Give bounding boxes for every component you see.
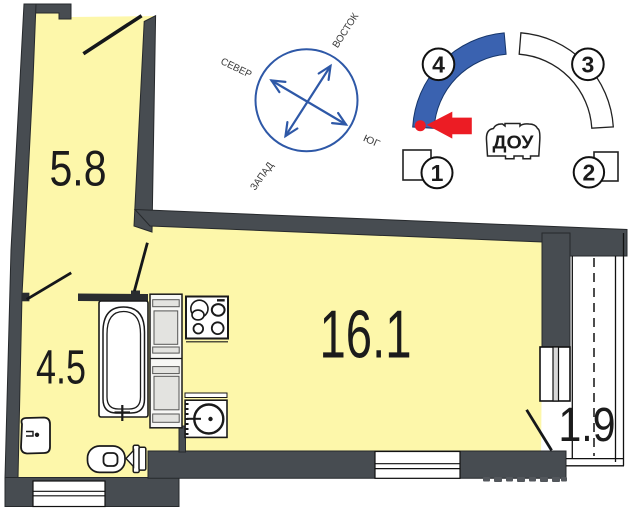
svg-text:ДОУ: ДОУ	[493, 132, 535, 153]
svg-text:1.9: 1.9	[559, 399, 616, 452]
svg-text:5.8: 5.8	[50, 141, 107, 197]
svg-text:16.1: 16.1	[320, 297, 412, 373]
svg-text:3: 3	[582, 52, 595, 78]
svg-text:2: 2	[583, 160, 596, 186]
svg-text:4.5: 4.5	[36, 342, 86, 395]
svg-text:1: 1	[431, 160, 444, 186]
svg-text:4: 4	[432, 52, 445, 78]
